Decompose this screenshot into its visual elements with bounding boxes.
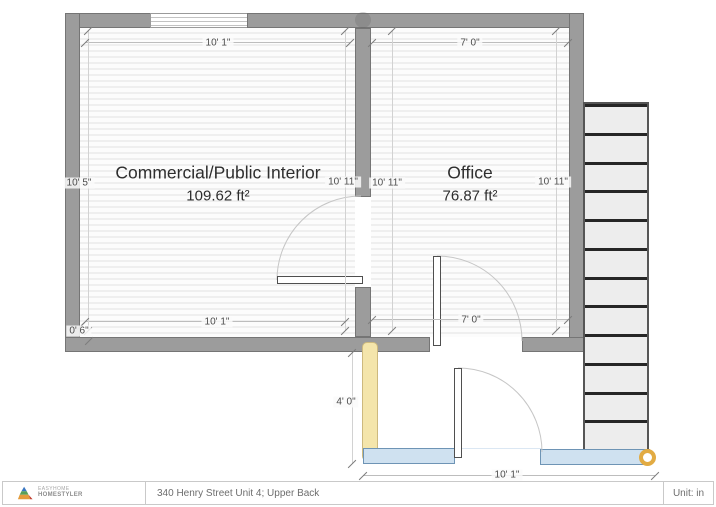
dim-label-office-right: 10' 11" <box>535 177 571 188</box>
threshold-connector <box>456 448 542 449</box>
homestyler-logo-icon <box>16 485 34 501</box>
dim-tick <box>359 472 367 480</box>
stairs[interactable] <box>583 102 649 451</box>
wall-right[interactable] <box>569 13 584 352</box>
dim-label-wall-thickness: 0' 6" <box>66 326 91 337</box>
stair-step <box>585 392 647 421</box>
footer-unit-label: Unit: in <box>663 482 713 504</box>
room-label-office: Office <box>447 163 492 184</box>
stair-step <box>585 334 647 363</box>
dim-label-office-bottom: 7' 0" <box>458 315 483 326</box>
threshold-left[interactable] <box>363 448 455 464</box>
stair-step <box>585 219 647 248</box>
stair-step <box>585 162 647 191</box>
dim-label-exterior-width: 10' 1" <box>492 470 523 481</box>
dim-line-exterior-height <box>352 352 353 464</box>
footer-bar: EASYHOME HOMESTYLER 340 Henry Street Uni… <box>2 481 714 505</box>
dim-label-office-left: 10' 11" <box>369 178 405 189</box>
door-leaf-entry[interactable] <box>454 368 462 458</box>
door-swing-arc-entry <box>458 368 542 452</box>
threshold-right[interactable] <box>540 449 650 465</box>
door-leaf-office[interactable] <box>433 256 441 346</box>
door-leaf-interior[interactable] <box>277 276 363 284</box>
window-top[interactable] <box>150 13 248 28</box>
dim-label-commercial-left: 10' 5" <box>64 178 95 189</box>
dim-label-commercial-top: 10' 1" <box>203 38 234 49</box>
room-area-office: 76.87 ft² <box>442 188 497 205</box>
floorplan-canvas: 10' 1" 10' 1" 10' 5" 10' 11" 7' 0" 7' 0"… <box>0 0 716 507</box>
stair-step <box>585 420 647 449</box>
dim-label-commercial-bottom: 10' 1" <box>202 317 233 328</box>
stair-step <box>585 133 647 162</box>
dim-label-commercial-right: 10' 11" <box>325 177 361 188</box>
stair-step <box>585 190 647 219</box>
highlighted-wall[interactable] <box>362 342 378 461</box>
footer-address: 340 Henry Street Unit 4; Upper Back <box>146 482 663 504</box>
stair-step <box>585 305 647 334</box>
endpoint-marker[interactable] <box>639 449 656 466</box>
footer-logo-cell: EASYHOME HOMESTYLER <box>3 482 146 504</box>
dim-label-office-top: 7' 0" <box>457 38 482 49</box>
room-label-commercial: Commercial/Public Interior <box>115 163 320 184</box>
stair-step <box>585 277 647 306</box>
footer-brand: EASYHOME HOMESTYLER <box>38 487 83 499</box>
dim-label-exterior-height: 4' 0" <box>333 397 358 408</box>
wall-partition-upper[interactable] <box>355 28 371 197</box>
wall-partition-lower[interactable] <box>355 287 371 337</box>
stair-step <box>585 363 647 392</box>
dim-tick <box>651 472 659 480</box>
wall-bottom-right-segment[interactable] <box>522 337 584 352</box>
room-area-commercial: 109.62 ft² <box>186 188 249 205</box>
wall-joint <box>355 12 371 28</box>
stair-step <box>585 248 647 277</box>
stair-step <box>585 104 647 133</box>
footer-brand-bottom: HOMESTYLER <box>38 492 83 499</box>
wall-top-right-segment[interactable] <box>247 13 584 28</box>
